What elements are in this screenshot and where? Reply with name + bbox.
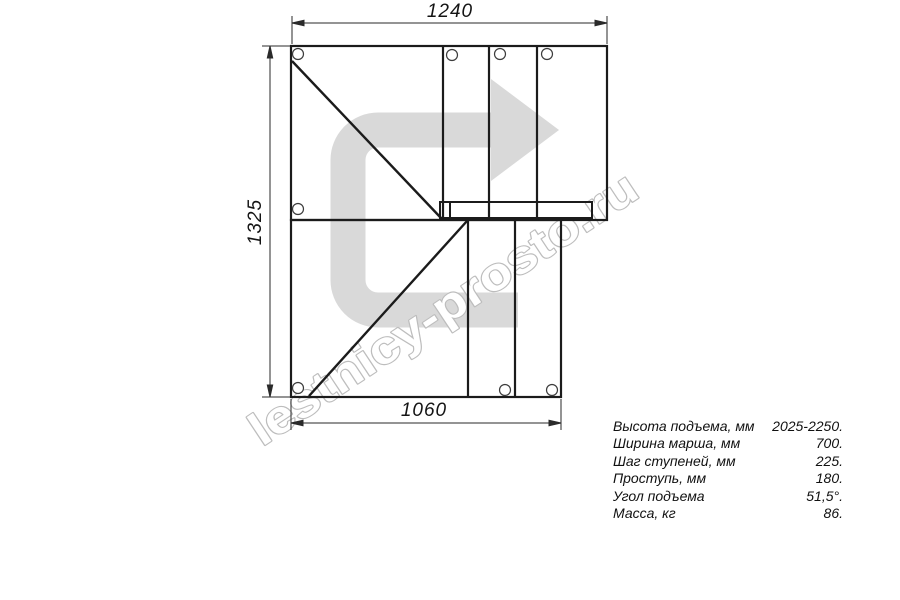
spec-label: Шаг ступеней, мм (613, 453, 736, 470)
spec-label: Масса, кг (613, 505, 676, 522)
mounting-hole (293, 204, 304, 215)
mounting-hole (542, 49, 553, 60)
spec-row: Угол подъема 51,5°. (613, 488, 843, 505)
mounting-hole (547, 385, 558, 396)
spec-row: Проступь, мм 180. (613, 470, 843, 487)
stair-plan-canvas: lestnicy-prosto.ru (0, 0, 900, 600)
dimension-arrow-icon (549, 420, 561, 425)
spec-value: 51,5°. (806, 488, 843, 505)
spec-row: Масса, кг 86. (613, 505, 843, 522)
specs-table: Высота подъема, мм 2025-2250. Ширина мар… (613, 418, 843, 522)
spec-label: Проступь, мм (613, 470, 706, 487)
spec-value: 180. (816, 470, 843, 487)
mounting-hole (293, 49, 304, 60)
spec-value: 225. (816, 453, 843, 470)
dimension-arrow-icon (292, 20, 304, 25)
dimension-label-bottom: 1060 (382, 400, 466, 422)
mounting-hole (500, 385, 511, 396)
dimension-label-top: 1240 (408, 1, 492, 23)
spec-label: Высота подъема, мм (613, 418, 755, 435)
dimension-arrow-icon (267, 46, 272, 58)
spec-value: 86. (824, 505, 843, 522)
mounting-hole (495, 49, 506, 60)
spec-label: Ширина марша, мм (613, 435, 740, 452)
mounting-hole (293, 383, 304, 394)
spec-row: Высота подъема, мм 2025-2250. (613, 418, 843, 435)
spec-value: 2025-2250. (772, 418, 843, 435)
spec-value: 700. (816, 435, 843, 452)
spec-label: Угол подъема (613, 488, 705, 505)
spec-row: Шаг ступеней, мм 225. (613, 453, 843, 470)
mounting-hole (447, 50, 458, 61)
arrow-head-icon (491, 79, 559, 181)
dimension-arrow-icon (595, 20, 607, 25)
spec-row: Ширина марша, мм 700. (613, 435, 843, 452)
dimension-label-left: 1325 (245, 180, 267, 264)
